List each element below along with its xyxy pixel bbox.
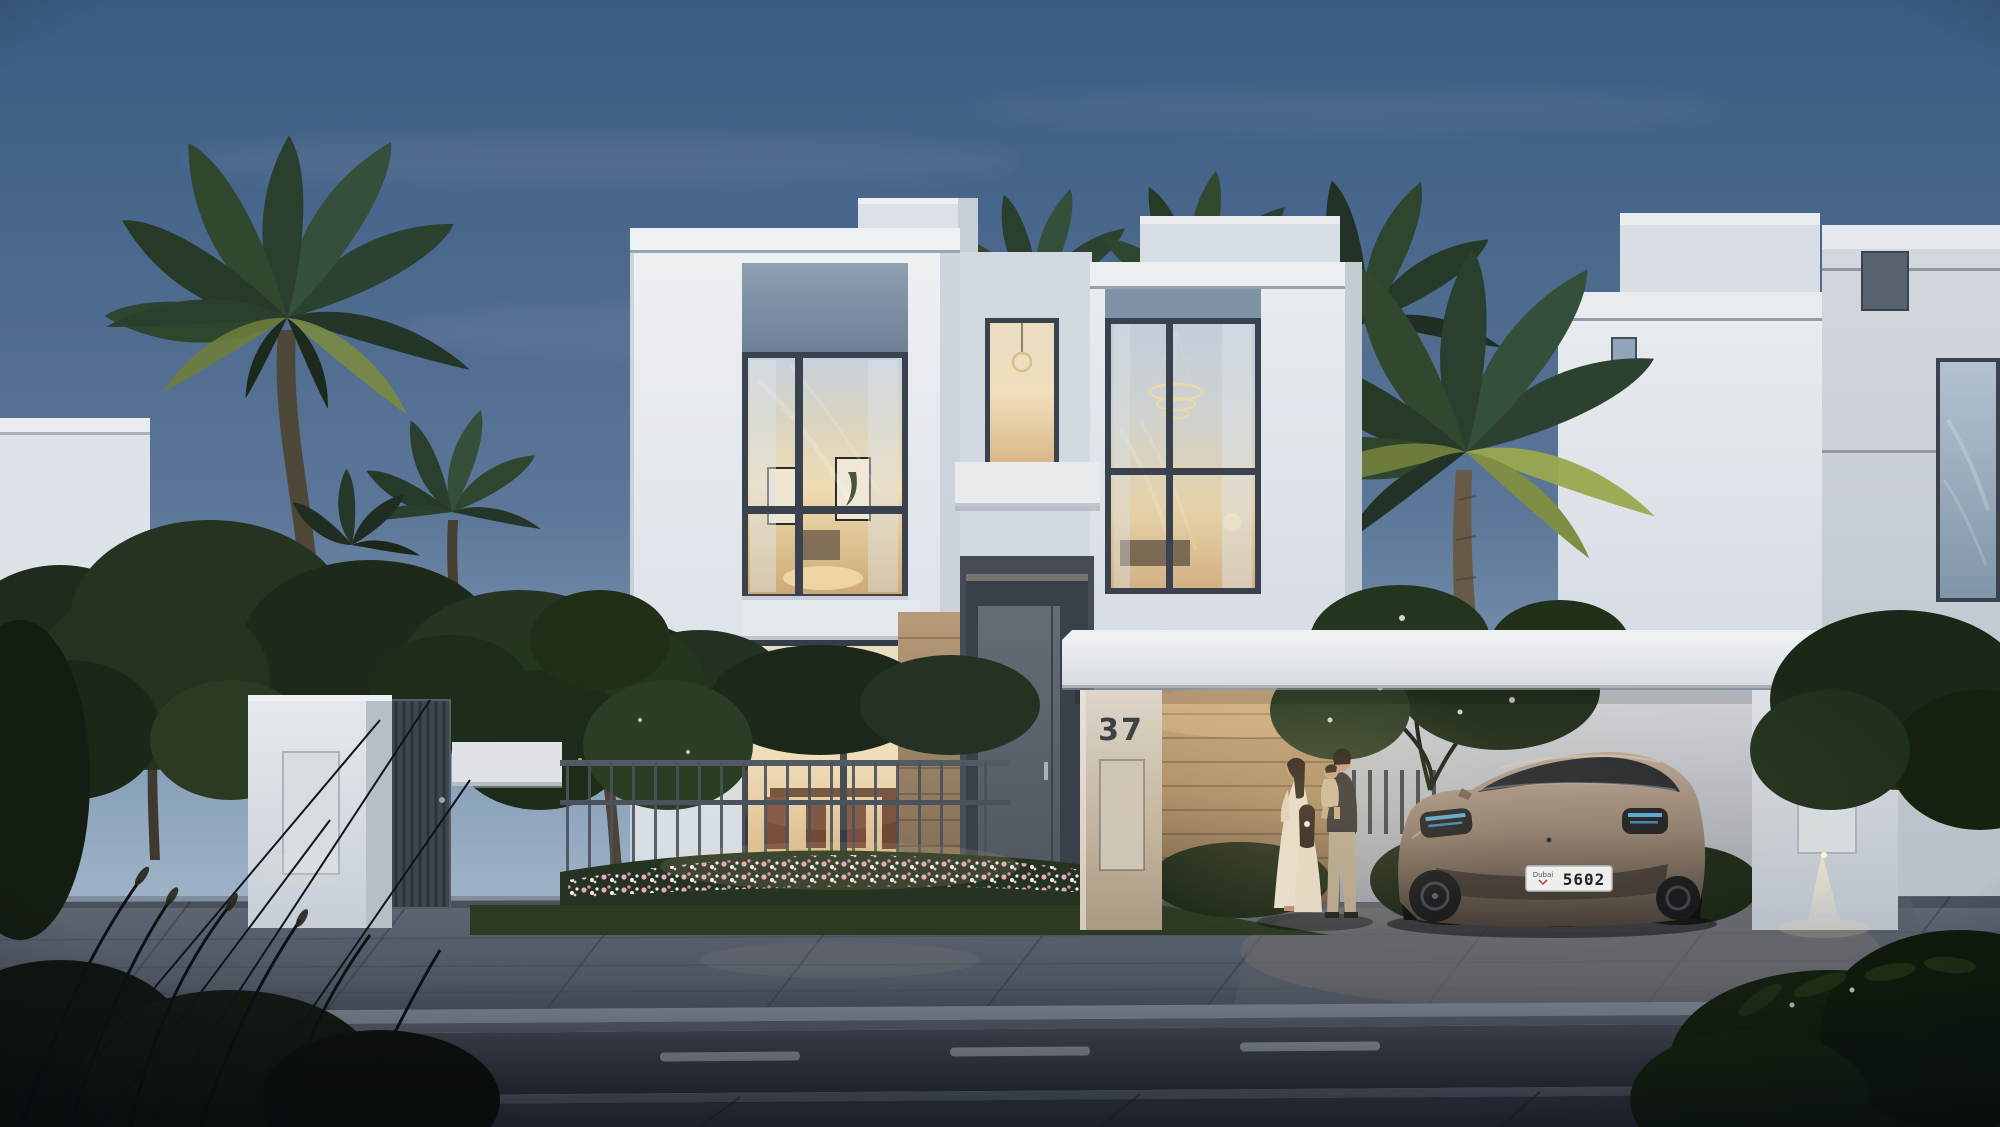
villa-dusk-rendering: 37 bbox=[0, 0, 2000, 1127]
vignette bbox=[0, 0, 2000, 1127]
